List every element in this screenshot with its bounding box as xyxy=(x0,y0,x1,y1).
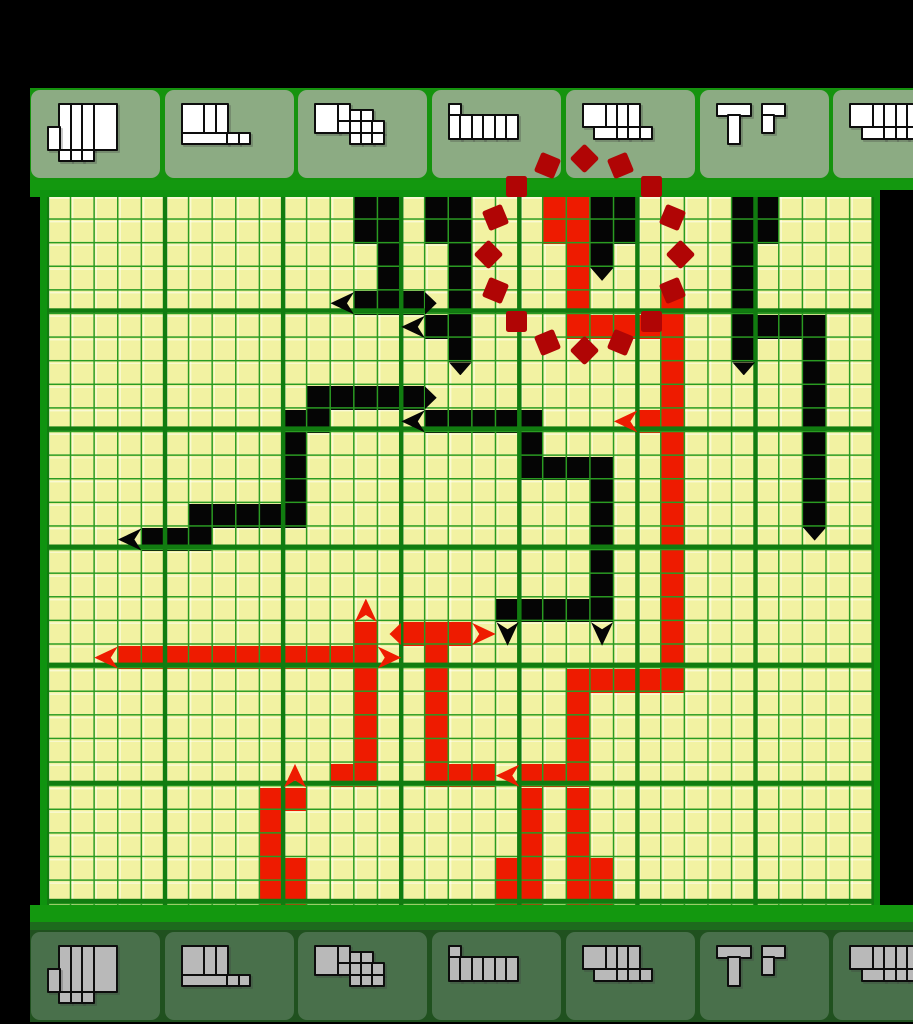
polyomino-square xyxy=(861,126,886,140)
path-cell-red xyxy=(567,197,591,221)
path-cell-black xyxy=(378,244,402,268)
polyomino-square xyxy=(849,103,874,128)
path-cell-red xyxy=(236,646,260,670)
path-cell-red xyxy=(661,669,685,693)
polyomino-square xyxy=(238,974,252,988)
tail-tip-right-black xyxy=(425,291,437,315)
polyomino-square xyxy=(582,945,607,970)
path-cell-red xyxy=(260,646,284,670)
path-cell-black xyxy=(803,315,827,339)
path-cell-red xyxy=(260,788,284,812)
path-cell-black xyxy=(141,528,165,552)
tray-tile-piece-5[interactable] xyxy=(566,90,695,178)
path-cell-black xyxy=(519,410,543,434)
path-cell-black xyxy=(449,339,473,363)
path-cell-black xyxy=(283,480,307,504)
path-cell-black xyxy=(732,339,756,363)
path-cell-black xyxy=(354,291,378,315)
path-cell-red xyxy=(661,480,685,504)
polyomino-square xyxy=(582,103,607,128)
polyomino-square xyxy=(861,968,886,982)
path-cell-red xyxy=(425,669,449,693)
path-cell-red xyxy=(567,244,591,268)
separator-bar-bottom-dark xyxy=(30,922,913,930)
arrowhead-left-black xyxy=(118,528,142,552)
path-cell-red xyxy=(472,764,496,788)
path-cell-red xyxy=(661,528,685,552)
path-cell-red xyxy=(567,764,591,788)
path-cell-black xyxy=(756,315,780,339)
path-cell-black xyxy=(590,599,614,623)
path-cell-red xyxy=(614,669,638,693)
path-cell-red xyxy=(141,646,165,670)
path-cell-red xyxy=(260,882,284,906)
path-cell-black xyxy=(803,504,827,528)
path-cell-black xyxy=(165,528,189,552)
path-cell-black xyxy=(449,244,473,268)
path-cell-red xyxy=(449,622,473,646)
path-cell-red xyxy=(590,858,614,882)
path-cell-red xyxy=(661,646,685,670)
path-cell-red xyxy=(496,882,520,906)
polyomino-square xyxy=(181,974,229,988)
polyomino-square xyxy=(314,945,339,976)
path-cell-black xyxy=(590,244,614,268)
path-cell-black xyxy=(543,599,567,623)
path-cell-red xyxy=(567,268,591,292)
path-cell-black xyxy=(614,197,638,221)
path-cell-red xyxy=(567,693,591,717)
tail-tip-down-black xyxy=(590,268,614,281)
tray-tile-piece-5[interactable] xyxy=(566,932,695,1020)
path-cell-red xyxy=(661,599,685,623)
path-cell-black xyxy=(496,599,520,623)
path-cell-black xyxy=(756,221,780,245)
path-cell-red xyxy=(425,740,449,764)
path-cell-black xyxy=(260,504,284,528)
path-cell-red xyxy=(567,717,591,741)
letterbox-top xyxy=(0,0,913,88)
path-cell-black xyxy=(425,197,449,221)
polyomino-square xyxy=(593,126,618,140)
path-cell-black xyxy=(401,386,425,410)
path-cell-black xyxy=(590,551,614,575)
path-cell-black xyxy=(732,244,756,268)
path-cell-red xyxy=(590,315,614,339)
path-cell-red xyxy=(307,646,331,670)
path-cell-black xyxy=(803,386,827,410)
path-cell-red xyxy=(449,764,473,788)
path-cell-black xyxy=(567,457,591,481)
arrowhead-left-black xyxy=(330,291,354,315)
path-cell-red xyxy=(425,646,449,670)
tray-tile-piece-3[interactable] xyxy=(298,90,427,178)
path-cell-red xyxy=(330,646,354,670)
path-cell-black xyxy=(472,410,496,434)
path-cell-red xyxy=(283,882,307,906)
polyomino-square xyxy=(727,114,741,145)
path-cell-red xyxy=(661,575,685,599)
polyomino-square xyxy=(238,132,252,146)
polyomino-square xyxy=(181,132,229,146)
polyomino-square xyxy=(215,945,229,976)
path-cell-red xyxy=(567,669,591,693)
path-cell-black xyxy=(330,386,354,410)
path-cell-black xyxy=(449,410,473,434)
path-cell-black xyxy=(590,221,614,245)
path-cell-black xyxy=(803,457,827,481)
path-cell-red xyxy=(661,457,685,481)
path-cell-black xyxy=(378,291,402,315)
path-cell-black xyxy=(519,433,543,457)
tail-tip-down-black xyxy=(803,528,827,541)
path-cell-black xyxy=(189,504,213,528)
path-cell-black xyxy=(732,291,756,315)
polyomino-square xyxy=(371,132,385,146)
path-cell-black xyxy=(519,457,543,481)
path-cell-red xyxy=(354,646,378,670)
path-cell-black xyxy=(590,480,614,504)
polyomino-square xyxy=(627,945,641,970)
path-cell-black xyxy=(803,480,827,504)
path-cell-red xyxy=(283,646,307,670)
path-cell-black xyxy=(449,315,473,339)
polyomino-square xyxy=(627,103,641,128)
arrowhead-down-black xyxy=(590,622,614,646)
path-cell-black xyxy=(732,315,756,339)
arrowhead-left-red xyxy=(94,646,118,670)
path-cell-red xyxy=(401,622,425,646)
polyomino-square xyxy=(181,103,206,134)
polyomino-square xyxy=(505,114,519,139)
tail-tip-right-black xyxy=(425,386,437,410)
clue-tray-top xyxy=(30,88,913,180)
path-cell-red xyxy=(638,410,662,434)
path-cell-black xyxy=(354,197,378,221)
path-cell-red xyxy=(567,740,591,764)
path-cell-red xyxy=(425,764,449,788)
path-cell-black xyxy=(519,599,543,623)
path-cell-red xyxy=(567,221,591,245)
path-cell-red xyxy=(590,882,614,906)
path-cell-red xyxy=(661,386,685,410)
path-cell-red xyxy=(519,858,543,882)
path-cell-red xyxy=(567,858,591,882)
tail-tip-down-black xyxy=(449,362,473,375)
path-cell-red xyxy=(661,315,685,339)
polyomino-square xyxy=(906,968,913,982)
path-cell-black xyxy=(425,221,449,245)
path-cell-black xyxy=(590,528,614,552)
path-cell-red xyxy=(590,669,614,693)
path-cell-red xyxy=(567,788,591,812)
path-cell-black xyxy=(590,504,614,528)
path-cell-black xyxy=(567,599,591,623)
polyomino-square xyxy=(81,991,95,1005)
path-cell-black xyxy=(189,528,213,552)
path-cell-red xyxy=(260,811,284,835)
path-cell-red xyxy=(425,717,449,741)
path-cell-red xyxy=(661,504,685,528)
path-cell-red xyxy=(614,315,638,339)
tail-tip-left-red xyxy=(389,622,401,646)
path-cell-red xyxy=(283,788,307,812)
polyomino-square xyxy=(906,126,913,140)
polyomino-square xyxy=(593,968,618,982)
path-cell-red xyxy=(519,788,543,812)
path-cell-red xyxy=(543,221,567,245)
path-cell-red xyxy=(543,197,567,221)
path-cell-black xyxy=(756,197,780,221)
path-cell-black xyxy=(732,268,756,292)
arrowhead-up-red xyxy=(283,764,307,788)
polyomino-square xyxy=(371,974,385,988)
polyomino-square xyxy=(849,945,874,970)
polyomino-square xyxy=(761,114,775,134)
path-cell-black xyxy=(543,457,567,481)
tray-tile-piece-3[interactable] xyxy=(298,932,427,1020)
path-cell-black xyxy=(590,457,614,481)
path-cell-red xyxy=(330,764,354,788)
path-cell-red xyxy=(661,622,685,646)
path-cell-red xyxy=(260,858,284,882)
path-cell-black xyxy=(803,362,827,386)
polyomino-square xyxy=(761,956,775,976)
path-cell-red xyxy=(567,315,591,339)
tray-tile-piece-7[interactable] xyxy=(833,932,913,1020)
arrowhead-right-red xyxy=(472,622,496,646)
path-cell-red xyxy=(661,433,685,457)
game-screen xyxy=(0,0,913,1024)
path-cell-black xyxy=(307,386,331,410)
tray-tile-piece-6[interactable] xyxy=(700,932,829,1020)
path-cell-red xyxy=(496,858,520,882)
polyomino-square xyxy=(181,945,206,976)
path-cell-black xyxy=(449,268,473,292)
path-cell-black xyxy=(803,339,827,363)
path-cell-black xyxy=(590,575,614,599)
path-cell-black xyxy=(378,386,402,410)
path-cell-red xyxy=(661,410,685,434)
path-cell-black xyxy=(590,197,614,221)
polyomino-square xyxy=(906,945,913,970)
tray-tile-piece-6[interactable] xyxy=(700,90,829,178)
path-cell-black xyxy=(236,504,260,528)
tail-tip-down-black xyxy=(732,362,756,375)
polyomino-square xyxy=(93,103,118,151)
puzzle-board[interactable] xyxy=(40,190,880,912)
path-cell-red xyxy=(519,811,543,835)
polyomino-square xyxy=(215,103,229,134)
path-cell-red xyxy=(354,740,378,764)
path-cell-red xyxy=(519,882,543,906)
path-cell-black xyxy=(354,386,378,410)
tray-tile-piece-4[interactable] xyxy=(432,932,561,1020)
arrowhead-left-red xyxy=(496,764,520,788)
path-cell-black xyxy=(425,410,449,434)
tray-tile-piece-1[interactable] xyxy=(31,90,160,178)
path-cell-red xyxy=(354,669,378,693)
polyomino-square xyxy=(314,103,339,134)
path-cell-red xyxy=(425,693,449,717)
tray-tile-piece-2[interactable] xyxy=(165,932,294,1020)
tray-tile-piece-7[interactable] xyxy=(833,90,913,178)
path-cell-black xyxy=(378,268,402,292)
path-cell-red xyxy=(638,315,662,339)
path-cell-red xyxy=(543,764,567,788)
path-cell-black xyxy=(614,221,638,245)
arrowhead-left-black xyxy=(401,410,425,434)
path-cell-red xyxy=(354,717,378,741)
path-cell-red xyxy=(519,835,543,859)
path-cell-black xyxy=(779,315,803,339)
path-cell-black xyxy=(283,433,307,457)
path-cell-black xyxy=(283,504,307,528)
path-cell-red xyxy=(567,882,591,906)
polyomino-square xyxy=(906,103,913,128)
path-cell-black xyxy=(283,457,307,481)
polyomino-square xyxy=(47,126,61,151)
path-cell-red xyxy=(118,646,142,670)
arrowhead-right-red xyxy=(378,646,402,670)
path-cell-red xyxy=(638,669,662,693)
arrowhead-left-black xyxy=(401,315,425,339)
path-cell-red xyxy=(661,362,685,386)
arrowhead-down-black xyxy=(496,622,520,646)
path-cell-red xyxy=(567,811,591,835)
arrowhead-up-red xyxy=(354,599,378,623)
polyomino-square xyxy=(639,968,653,982)
separator-bar-bottom xyxy=(30,905,913,922)
polyomino-square xyxy=(47,968,61,993)
path-cell-black xyxy=(496,410,520,434)
path-cell-red xyxy=(165,646,189,670)
path-cell-black xyxy=(449,197,473,221)
path-cell-black xyxy=(307,410,331,434)
path-cell-black xyxy=(378,197,402,221)
polyomino-square xyxy=(93,945,118,993)
path-cell-red xyxy=(661,291,685,315)
path-cell-red xyxy=(354,764,378,788)
board-cells[interactable] xyxy=(47,197,874,906)
tray-tile-piece-2[interactable] xyxy=(165,90,294,178)
path-cell-black xyxy=(732,221,756,245)
path-cell-red xyxy=(567,291,591,315)
tray-tile-piece-4[interactable] xyxy=(432,90,561,178)
path-cell-red xyxy=(661,339,685,363)
letterbox-left xyxy=(0,0,30,1024)
path-cell-black xyxy=(425,315,449,339)
path-cell-black xyxy=(401,291,425,315)
letterbox-right-of-board xyxy=(880,190,913,912)
path-cell-red xyxy=(260,835,284,859)
polyomino-square xyxy=(81,149,95,163)
path-cell-black xyxy=(212,504,236,528)
path-cell-red xyxy=(354,622,378,646)
path-cell-red xyxy=(519,764,543,788)
tray-tile-piece-1[interactable] xyxy=(31,932,160,1020)
polyomino-square xyxy=(639,126,653,140)
path-cell-black xyxy=(732,197,756,221)
path-cell-black xyxy=(378,221,402,245)
path-cell-red xyxy=(567,835,591,859)
clue-tray-bottom xyxy=(30,930,913,1022)
path-cell-red xyxy=(283,858,307,882)
polyomino-square xyxy=(505,956,519,981)
path-cell-black xyxy=(449,291,473,315)
path-cell-black xyxy=(803,410,827,434)
arrowhead-left-red xyxy=(614,410,638,434)
path-cell-black xyxy=(283,410,307,434)
polyomino-square xyxy=(727,956,741,987)
path-cell-red xyxy=(661,551,685,575)
path-cell-black xyxy=(449,221,473,245)
path-cell-red xyxy=(212,646,236,670)
path-cell-black xyxy=(803,433,827,457)
path-cell-black xyxy=(354,221,378,245)
path-cell-red xyxy=(354,693,378,717)
path-cell-red xyxy=(189,646,213,670)
path-cell-red xyxy=(425,622,449,646)
